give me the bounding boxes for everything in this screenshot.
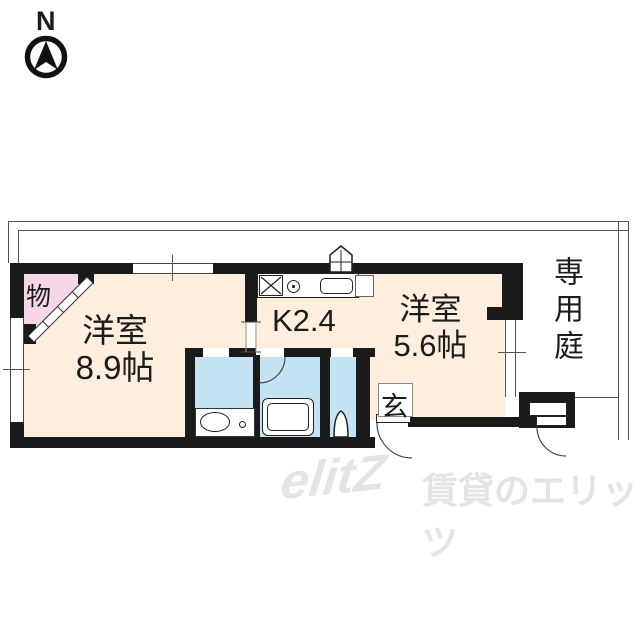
main-room-label: 洋室 8.9帖 — [40, 312, 190, 386]
main-room-name: 洋室 — [40, 312, 190, 349]
corridor-outer-line — [8, 221, 628, 222]
window-subroom-line-1 — [505, 320, 506, 397]
garden-bottom-line — [575, 397, 619, 398]
corridor-left-line-2 — [18, 230, 19, 263]
corridor-inner-line — [18, 230, 628, 231]
faucet-icon — [239, 421, 246, 428]
floorplan-canvas: elitZ 賃貸のエリッツ N — [0, 0, 640, 640]
kitchen-label: K2.4 — [272, 303, 336, 339]
kitchen-sink-icon — [320, 278, 353, 294]
bathtub-inner — [267, 403, 309, 431]
garden-gate-leaf — [536, 416, 567, 426]
wall-bath-toilet-divider — [320, 352, 330, 437]
window-subroom-line-2 — [515, 320, 516, 397]
bathroom-door-gap — [256, 348, 284, 357]
closet-label: 物 — [26, 277, 51, 313]
toilet-door-gap — [331, 348, 353, 357]
window-left-tick — [3, 369, 30, 370]
window-top — [133, 263, 213, 274]
burner-icon — [287, 280, 300, 293]
sub-room-size: 5.6帖 — [363, 328, 498, 364]
compass-icon — [23, 34, 69, 80]
closet-door-anchor-top — [78, 274, 94, 284]
closet-door-anchor-bottom — [24, 324, 36, 344]
corridor-left-line-1 — [8, 221, 9, 263]
toilet-floor — [330, 355, 358, 439]
garden-right-line-inner — [618, 221, 619, 440]
garden-label: 専用庭 — [543, 256, 587, 396]
sub-room-label: 洋室 5.6帖 — [363, 292, 498, 364]
window-left — [10, 318, 24, 422]
wall-kitchen-divider — [245, 274, 257, 322]
sub-room-name: 洋室 — [363, 292, 498, 328]
main-room-size: 8.9帖 — [40, 349, 190, 386]
window-subroom-tick — [498, 352, 526, 353]
washroom-door-gap — [203, 348, 229, 357]
window-top-tick — [172, 255, 173, 281]
entrance-label: 玄 — [381, 385, 408, 424]
washbasin-icon — [200, 412, 230, 432]
watermark-logo: elitZ — [278, 443, 389, 511]
watermark-text: 賃貸のエリッツ — [422, 462, 640, 566]
compass-north-label: N — [36, 6, 56, 37]
garden-gate-frame — [529, 402, 567, 416]
stove-icon — [259, 275, 283, 296]
wall-bottom — [10, 437, 375, 448]
garden-right-line-outer — [628, 221, 629, 440]
wall-entrance-bottom — [408, 417, 536, 427]
